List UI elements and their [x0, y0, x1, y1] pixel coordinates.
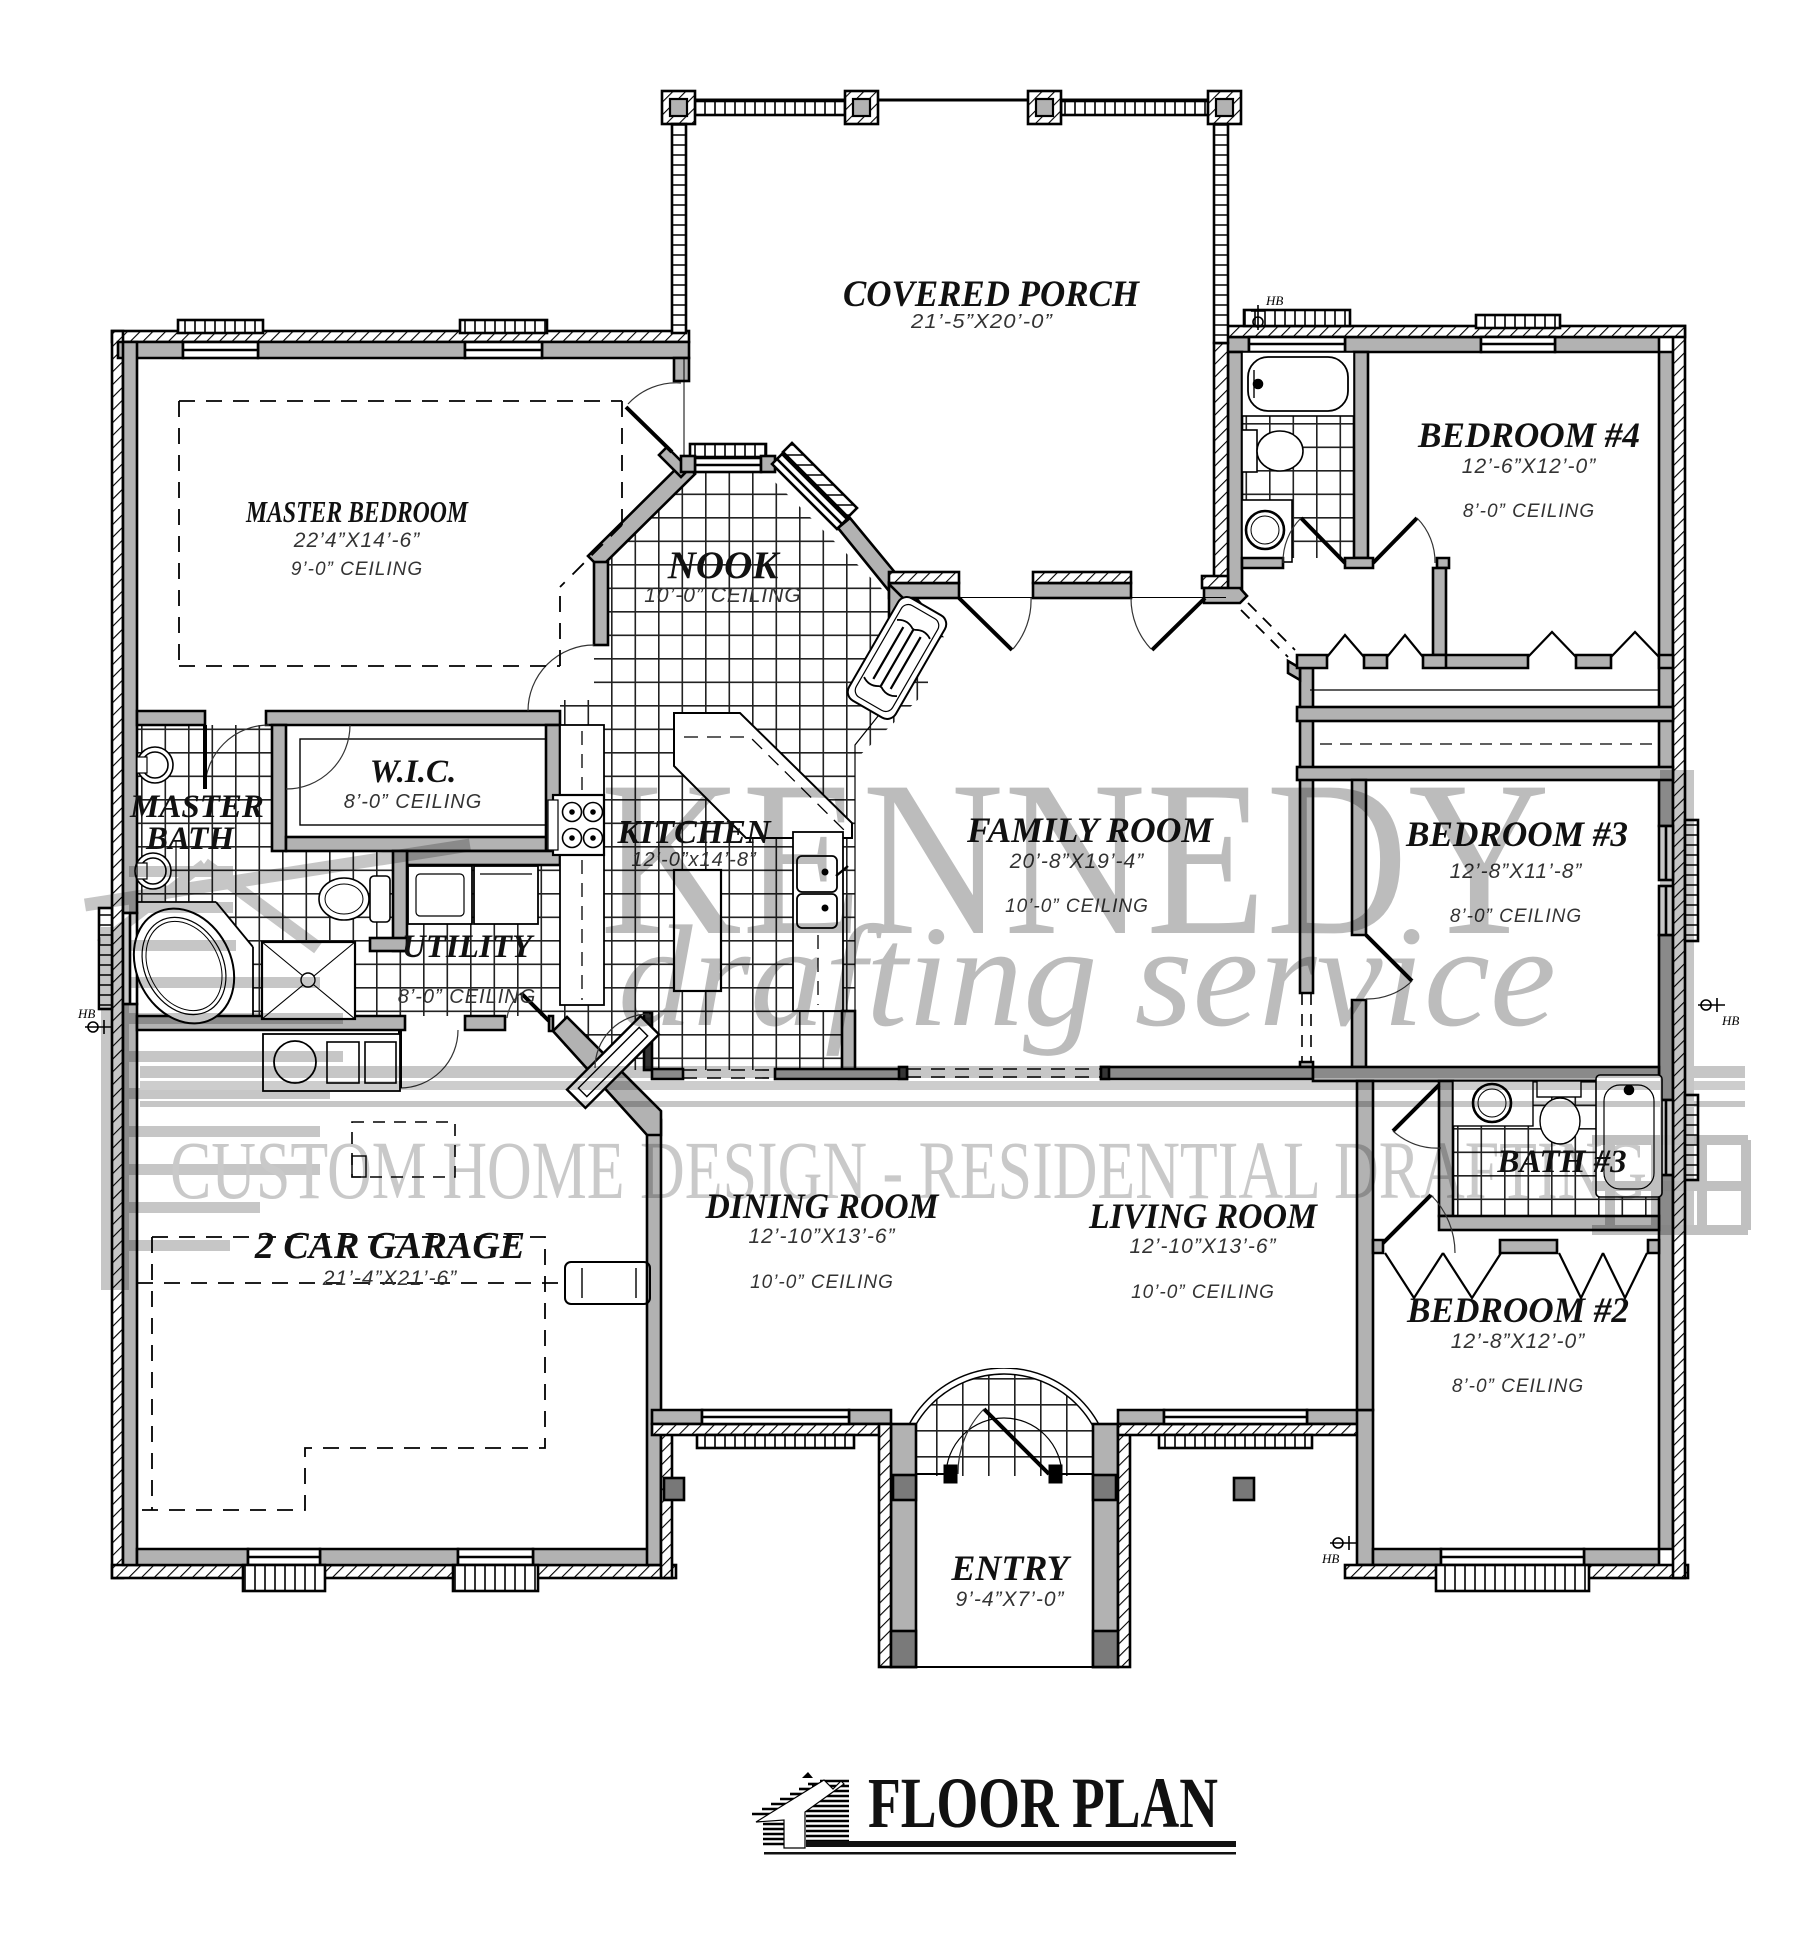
- svg-text:21’-5”X20’-0”: 21’-5”X20’-0”: [910, 311, 1053, 333]
- svg-text:BATH: BATH: [145, 821, 235, 857]
- svg-text:2 CAR GARAGE: 2 CAR GARAGE: [254, 1225, 525, 1267]
- svg-text:10’-0” CEILING: 10’-0” CEILING: [644, 584, 802, 607]
- svg-text:12’-6”X12’-0”: 12’-6”X12’-0”: [1462, 455, 1596, 478]
- svg-text:9’-0” CEILING: 9’-0” CEILING: [291, 559, 423, 580]
- svg-text:HB: HB: [1265, 293, 1283, 308]
- svg-text:BEDROOM #4: BEDROOM #4: [1417, 415, 1640, 455]
- svg-text:22’4”X14’-6”: 22’4”X14’-6”: [293, 529, 420, 552]
- svg-text:COVERED PORCH: COVERED PORCH: [843, 274, 1140, 315]
- svg-text:21’-4”X21’-6”: 21’-4”X21’-6”: [322, 1267, 457, 1290]
- svg-text:8’-0” CEILING: 8’-0” CEILING: [1452, 1376, 1584, 1397]
- svg-text:10’-0” CEILING: 10’-0” CEILING: [1131, 1282, 1275, 1303]
- svg-text:MASTER: MASTER: [129, 789, 264, 825]
- svg-text:12’-10”X13’-6”: 12’-10”X13’-6”: [748, 1225, 895, 1248]
- svg-text:12’-10”X13’-6”: 12’-10”X13’-6”: [1129, 1235, 1276, 1258]
- svg-text:MASTER BEDROOM: MASTER BEDROOM: [245, 494, 469, 529]
- svg-text:8’-0” CEILING: 8’-0” CEILING: [1463, 501, 1595, 522]
- svg-text:12’-8”X12’-0”: 12’-8”X12’-0”: [1451, 1330, 1585, 1353]
- svg-text:10’-0” CEILING: 10’-0” CEILING: [750, 1272, 894, 1293]
- svg-text:CUSTOM HOME DESIGN - RESIDENTI: CUSTOM HOME DESIGN - RESIDENTIAL DRAFTIN…: [170, 1124, 1647, 1216]
- svg-text:HB: HB: [77, 1006, 95, 1021]
- svg-text:ENTRY: ENTRY: [950, 1548, 1071, 1588]
- svg-text:HB: HB: [1721, 1013, 1739, 1028]
- svg-text:9’-4”X7’-0”: 9’-4”X7’-0”: [955, 1588, 1064, 1611]
- svg-text:drafting service: drafting service: [618, 897, 1556, 1057]
- svg-text:8’-0” CEILING: 8’-0” CEILING: [398, 986, 537, 1008]
- svg-text:W.I.C.: W.I.C.: [370, 754, 457, 790]
- svg-text:8’-0” CEILING: 8’-0” CEILING: [344, 791, 483, 813]
- svg-text:BEDROOM #2: BEDROOM #2: [1406, 1290, 1629, 1330]
- svg-text:FLOOR PLAN: FLOOR PLAN: [868, 1763, 1218, 1843]
- svg-text:NOOK: NOOK: [667, 544, 781, 587]
- svg-text:UTILITY: UTILITY: [402, 929, 535, 965]
- svg-text:HB: HB: [1321, 1551, 1339, 1566]
